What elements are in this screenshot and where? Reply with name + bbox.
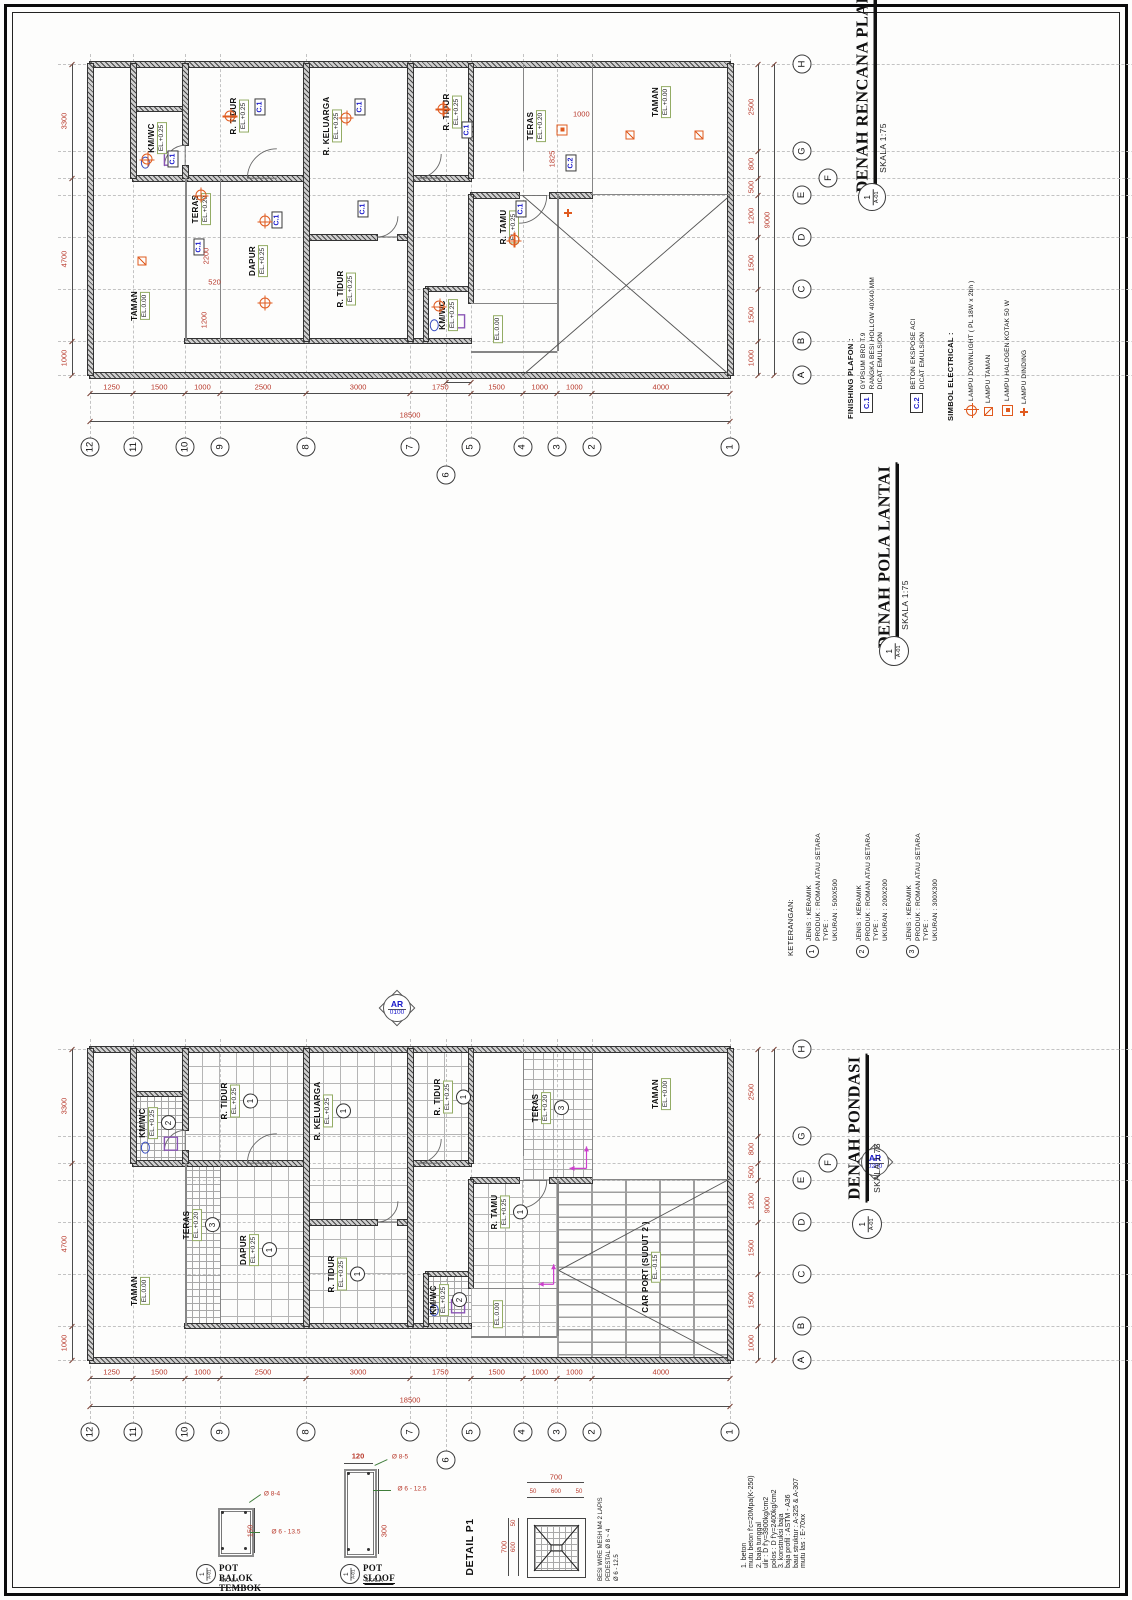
ref-number: 1: [864, 195, 872, 199]
dim-total-line-right: [774, 64, 775, 375]
plan-lantai: 121110987654321HGFEDCBA12501500100025003…: [0, 485, 1132, 1015]
grid-bubble-9: 9: [210, 438, 229, 457]
p1-dim-sub: 50: [576, 1489, 583, 1495]
dim-label: 1000: [531, 383, 548, 392]
ceiling-tag-C.1: C.1: [515, 201, 526, 218]
balok-rebar-side: Ø 6 - 13.5: [272, 1529, 301, 1536]
room-elevation: EL.+0.25: [448, 299, 458, 331]
keterangan-title: KETERANGAN:: [786, 899, 795, 956]
dim-label: 1500: [747, 307, 756, 324]
note-line: mutu las : E-70xx: [800, 1514, 808, 1568]
sloof-rebar-top: Ø 8-5: [392, 1454, 408, 1461]
plan-pondasi: 10987654321HGFEDCBA125015002500300017501…: [0, 1015, 1132, 1455]
plan-overlay: [90, 64, 730, 375]
keterangan-item-1: 1JENIS : KERAMIKPRODUK : ROMAN ATAU SETA…: [806, 833, 840, 958]
dim-label: 1000: [747, 350, 756, 367]
leader-line: [373, 1490, 391, 1491]
garden-lamp-icon: [137, 257, 146, 266]
keterangan-lines: JENIS : KERAMIKPRODUK : ROMAN ATAU SETAR…: [906, 833, 940, 941]
downlight-icon: [225, 110, 236, 121]
grid-bubble-label: 1: [725, 445, 736, 450]
legend-electrical-item: LAMPU DINDING: [1020, 350, 1028, 416]
dim-label: 3000: [350, 383, 367, 392]
downlight-icon: [259, 297, 270, 308]
downlight-icon: [195, 190, 206, 201]
grid-bubble-6: 6: [437, 466, 456, 485]
dim-total-line: [90, 421, 730, 422]
room-elevation: EL.+0.25: [157, 122, 167, 154]
ref-number: 1: [886, 649, 894, 653]
grid-bubble-label: D: [797, 234, 808, 241]
grid-bubble-label: 3: [552, 445, 563, 450]
dim-line-left: [72, 64, 73, 375]
grid-bubble-12: 12: [81, 438, 100, 457]
wall-lamp-icon: [564, 209, 572, 217]
grid-bubble-8: 8: [297, 438, 316, 457]
legend-electrical-label: LAMPU DINDING: [1021, 350, 1028, 404]
keterangan-item-2: 2JENIS : KERAMIKPRODUK : ROMAN ATAU SETA…: [856, 833, 890, 958]
detail-dim: 2200: [201, 248, 210, 265]
dim-label: 1000: [60, 350, 69, 367]
balok-ref-circle: 1A-01: [196, 1564, 216, 1584]
sloof-ref-circle: 1A-01: [340, 1564, 360, 1584]
legend-electrical-title: SIMBOL ELECTRICAL :: [946, 332, 955, 421]
ceiling-tag-C.1: C.1: [462, 121, 473, 138]
pondasi-title: DENAH PONDASI: [845, 1053, 868, 1202]
room-name: R. KELUARGA: [322, 97, 331, 156]
dim-label: 1500: [747, 255, 756, 272]
dim-line-right: [758, 64, 759, 375]
plafon-scale: SKALA 1:75: [878, 123, 888, 173]
downlight-icon: [434, 301, 445, 312]
dim-total-right: 9000: [763, 211, 772, 228]
detail-dim: 520: [208, 277, 221, 286]
downlight-icon: [142, 154, 153, 165]
keramik-ref-circle: 2: [856, 945, 869, 958]
room-elevation: EL.+0.20: [536, 110, 546, 142]
ceiling-tag-C.1: C.1: [254, 99, 265, 116]
legend-electrical-item: LAMPU DOWNLIGHT ( PL 18W x 2bh ): [966, 280, 977, 416]
grid-bubble-G: G: [793, 141, 812, 160]
legend-item-C.2: C.2BETON EKSPOSE ACIDICAT EMULSION: [910, 318, 927, 413]
grid-bubble-5: 5: [461, 438, 480, 457]
room-name: R. TAMU: [499, 209, 508, 244]
lantai-title: DENAH POLA LANTAI: [875, 463, 898, 652]
grid-bubble-2: 2: [582, 438, 601, 457]
grid-bubble-3: 3: [548, 438, 567, 457]
ceiling-finish-tag: C.2: [910, 393, 923, 413]
legend-item-lines: BETON EKSPOSE ACIDICAT EMULSION: [910, 318, 927, 389]
balok-dim-side: 150: [246, 1525, 255, 1538]
p1-dim-left: 700: [500, 1541, 509, 1554]
keterangan-item-3: 3JENIS : KERAMIKPRODUK : ROMAN ATAU SETA…: [906, 833, 940, 958]
grid-bubble-label: 6: [441, 473, 452, 478]
halogen-lamp-icon: [1002, 405, 1013, 416]
plafon-title: DENAH RENCANA PLAFON: [853, 0, 876, 196]
grid-bubble-label: 2: [586, 445, 597, 450]
sloof-scale: SKALA: [365, 1578, 383, 1584]
detail-dim: 1200: [200, 312, 209, 329]
sloof-dim-top: 120: [352, 1452, 365, 1461]
detail-dim: 1825: [547, 151, 556, 168]
keramik-ref-circle: 3: [906, 945, 919, 958]
grid-bubble-label: B: [797, 338, 808, 344]
ref-number: 1: [859, 1222, 867, 1226]
grid-bubble-E: E: [793, 186, 812, 205]
mesh-note-line: Ø 6 - 12.5: [614, 1554, 622, 1581]
grid-bubble-A: A: [793, 366, 812, 385]
dim-line: [446, 382, 470, 383]
plan-plafon: 121110987654321HGFEDCBA12501500100025003…: [0, 0, 1132, 485]
legend-electrical-label: LAMPU DOWNLIGHT ( PL 18W x 2bh ): [968, 280, 975, 401]
note-line: mutu beton f'c=20Mpa(K-250): [748, 1475, 756, 1568]
grid-bubble-label: 7: [405, 445, 416, 450]
p1-title: DETAIL P1: [464, 1518, 476, 1575]
garden-lamp-icon: [694, 130, 703, 139]
room-name: TERAS: [526, 112, 535, 141]
room-name: TAMAN: [651, 87, 660, 117]
grid-bubble-label: 5: [465, 445, 476, 450]
detail-dim: 1000: [573, 110, 590, 119]
mesh-note-line: BESI WIRE MESH M4 2 LAPIS: [598, 1497, 606, 1581]
grid-bubble-F: F: [819, 169, 838, 188]
ceiling-tag-C.2: C.2: [565, 154, 576, 171]
grid-bubble-label: 8: [301, 445, 312, 450]
p1-dim-left-sub: 600: [511, 1542, 517, 1552]
downlight-icon: [259, 216, 270, 227]
grid-bubble-label: 4: [517, 445, 528, 450]
mesh-note-line: PEDESTAL Ø 8 ~ 4: [606, 1529, 614, 1581]
grid-bubble-C: C: [793, 279, 812, 298]
legend-electrical-item: LAMPU TAMAN: [984, 354, 993, 416]
room-elevation: EL.+0.25: [258, 245, 268, 277]
room-name: KM/WC: [147, 124, 156, 154]
note-line: baja profil : ASTM - A36: [785, 1494, 793, 1568]
dim-label: 4700: [60, 251, 69, 268]
legend-item-C.1: C.1GYPSUM BRD T.9RANGKA BESI HOLLOW 40X4…: [860, 277, 886, 413]
legend-electrical-label: LAMPU TAMAN: [985, 354, 992, 403]
dim-label: 1500: [151, 383, 168, 392]
room-elevation: EL.+0.00: [661, 86, 671, 118]
ceiling-tag-C.1: C.1: [271, 211, 282, 228]
dim-label: 3300: [60, 113, 69, 130]
wall-lamp-icon: [1020, 408, 1028, 416]
balok-scale: SKALA: [221, 1578, 239, 1584]
dim-label: 1500: [488, 383, 505, 392]
room-label: TERASEL.+0.20: [526, 110, 546, 142]
room-elevation: EL.0.00: [140, 292, 150, 320]
plafon-ref-circle: 1A-01: [858, 183, 886, 211]
ceiling-tag-C.1: C.1: [358, 201, 369, 218]
p1-dim-sub: 600: [551, 1489, 561, 1495]
dim-label: 500: [747, 181, 756, 194]
grid-bubble-label: 10: [180, 442, 191, 453]
note-line: ulir : D f'y=3900kg/cm2: [763, 1497, 771, 1568]
room-name: DAPUR: [248, 246, 257, 276]
ceiling-finish-tag: C.1: [860, 393, 873, 413]
grid-bubble-label: 11: [128, 442, 139, 452]
dim-label: 4000: [653, 383, 670, 392]
dim-label: 1750: [432, 383, 449, 392]
downlight-icon: [437, 103, 448, 114]
keterangan-lines: JENIS : KERAMIKPRODUK : ROMAN ATAU SETAR…: [856, 833, 890, 941]
garden-lamp-icon: [984, 407, 993, 416]
keramik-ref-circle: 1: [806, 945, 819, 958]
lantai-scale: SKALA 1:75: [900, 580, 910, 630]
dim-total: 18500: [400, 411, 421, 420]
dim-label: 2500: [747, 99, 756, 116]
grid-bubble-1: 1: [721, 438, 740, 457]
grid-bubble-D: D: [793, 228, 812, 247]
sloof-dim-side: 300: [380, 1525, 389, 1538]
room-elevation: EL.+0.25: [452, 96, 462, 128]
downlight-lamp-icon: [966, 405, 977, 416]
ref-sheet: A-01: [875, 191, 881, 203]
grid-bubble-label: 6: [441, 1458, 452, 1463]
pondasi-scale: SKALA 1:75: [872, 1143, 882, 1193]
lantai-ref-circle: 1A-01: [879, 636, 909, 666]
p1-diagonals: [528, 1519, 585, 1577]
grid-bubble-label: H: [797, 61, 808, 68]
grid-bubble-label: C: [797, 285, 808, 292]
room-name: TAMAN: [130, 291, 139, 321]
keterangan-lines: JENIS : KERAMIKPRODUK : ROMAN ATAU SETAR…: [806, 833, 840, 941]
leader-line: [374, 1459, 387, 1466]
balok-rebar-top: Ø 8-4: [264, 1491, 280, 1498]
leader-line: [249, 1494, 261, 1503]
grid-bubble-11: 11: [124, 438, 143, 457]
room-label: TAMANEL.+0.00: [651, 86, 671, 118]
p1-pedestal: [527, 1518, 586, 1578]
dim-label: 1000: [194, 383, 211, 392]
leader-line: [250, 1532, 260, 1533]
grid-bubble-label: 9: [214, 445, 225, 450]
grid-bubble-label: 12: [84, 442, 95, 453]
dim-label: 1000: [566, 383, 583, 392]
legend-electrical-label: LAMPU HALOGEN KOTAK 50 W: [1004, 300, 1011, 401]
room-elevation: EL.+0.25: [239, 100, 249, 132]
room-label: DAPUREL.+0.25: [248, 245, 268, 277]
grid-bubble-label: G: [796, 147, 807, 154]
dim-label: 1250: [103, 383, 120, 392]
downlight-icon: [341, 112, 352, 123]
garden-lamp-icon: [625, 130, 634, 139]
room-label: R. TIDUREL.+0.25: [336, 270, 356, 307]
p1-dim-top: 700: [550, 1473, 563, 1482]
grid-bubble-B: B: [793, 331, 812, 350]
grid-bubble-7: 7: [401, 438, 420, 457]
grid-bubble-H: H: [793, 55, 812, 74]
ref-sheet: A-01: [870, 1218, 876, 1230]
room-label: TAMANEL.0.00: [130, 291, 150, 321]
halogen-lamp-icon: [557, 124, 568, 135]
dim-label: 800: [747, 158, 756, 171]
p1-dim-sub: 50: [530, 1489, 537, 1495]
note-line: polos : D f'y=2400kg/cm2: [771, 1489, 779, 1568]
grid-bubble-10: 10: [176, 438, 195, 457]
room-name: R. TIDUR: [336, 270, 345, 307]
legend-finishing-title: FINISHING PLAFON :: [846, 338, 855, 419]
ceiling-tag-C.1: C.1: [354, 99, 365, 116]
legend-electrical-item: LAMPU HALOGEN KOTAK 50 W: [1002, 300, 1013, 416]
ceiling-tag-C.1: C.1: [168, 151, 179, 168]
grid-bubble-label: E: [797, 192, 808, 198]
room-elevation: EL.+0.25: [346, 273, 356, 305]
room-label: EL.0.00: [493, 314, 503, 342]
dim-label: 1200: [747, 208, 756, 225]
pondasi-ref-circle: 1A-01: [852, 1209, 882, 1239]
grid-bubble-4: 4: [513, 438, 532, 457]
downlight-icon: [508, 235, 519, 246]
grid-bubble-label: A: [797, 372, 808, 378]
legend-item-lines: GYPSUM BRD T.9RANGKA BESI HOLLOW 40X40 M…: [860, 277, 886, 389]
room-label: R. KELUARGAEL.+0.25: [322, 97, 342, 156]
room-elevation: EL.0.00: [493, 314, 503, 342]
grid-bubble-label: F: [823, 175, 834, 181]
p1-dim-left-sub: 50: [511, 1520, 517, 1527]
drawing-sheet: 121110987654321HGFEDCBA12501500100025003…: [0, 0, 1132, 1600]
sloof-rebar-side: Ø 6 - 12.5: [398, 1486, 427, 1493]
sloof-section: [344, 1469, 377, 1558]
ref-sheet: A-01: [897, 645, 903, 657]
dim-label: 2500: [255, 383, 272, 392]
room-label: KM/WCEL.+0.25: [147, 122, 167, 154]
